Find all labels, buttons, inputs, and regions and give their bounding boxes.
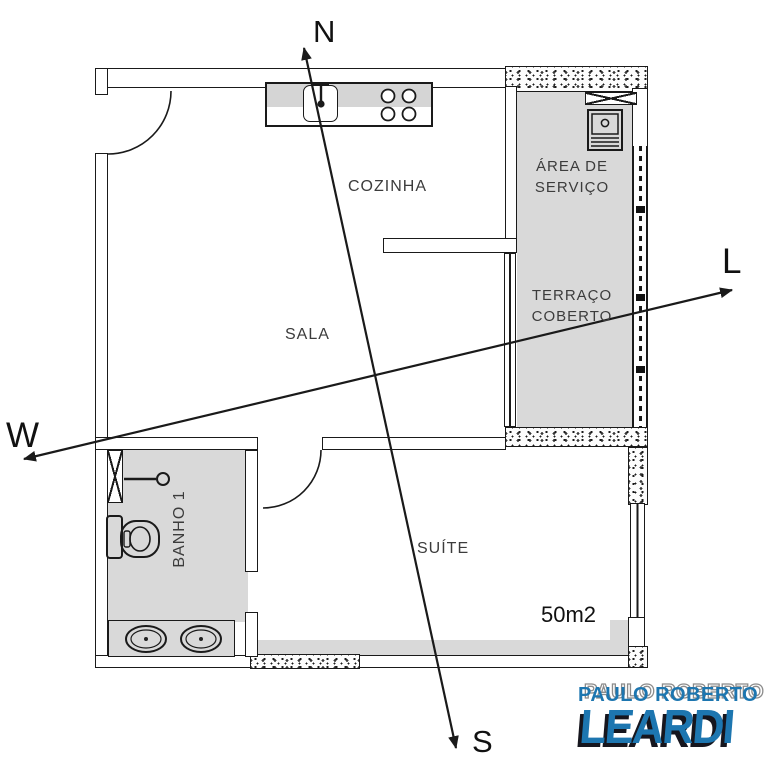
room-label-sala: SALA — [285, 326, 330, 344]
bottom-right-corner-stippled — [628, 646, 648, 668]
logo-wordmark: LEARDI — [578, 706, 751, 749]
terrace-sliding-door — [504, 253, 516, 427]
room-label-terraco: TERRAÇO COBERTO — [522, 285, 622, 327]
service-shaft-icon — [585, 92, 637, 105]
leardi-logo: PAULO ROBERTO PAULO ROBERTO LEARDI — [578, 684, 762, 749]
suite-window-jamb — [628, 617, 645, 648]
bathroom-right-wall-upper — [245, 450, 258, 572]
suite-door-arc — [263, 450, 321, 508]
room-label-terraco-line2: COBERTO — [522, 306, 622, 327]
suite-window — [630, 503, 645, 619]
bottom-wall-stippled-segment — [250, 654, 360, 669]
railing-tick — [636, 366, 645, 373]
suite-right-wall-stippled — [628, 447, 648, 505]
kitchen-half-wall — [383, 238, 517, 253]
room-label-area-servico: ÁREA DE SERVIÇO — [522, 156, 622, 198]
railing-tick — [636, 206, 645, 213]
compass-south-label: S — [472, 724, 493, 760]
floor-plan: COZINHA SALA ÁREA DE SERVIÇO TERRAÇO COB… — [0, 0, 768, 768]
kitchen-sink-icon — [303, 85, 338, 122]
compass-north-label: N — [313, 14, 335, 50]
kitchen-service-wall — [505, 86, 517, 253]
terrace-railing — [632, 146, 648, 427]
room-label-terraco-line1: TERRAÇO — [522, 285, 622, 306]
left-wall-upper — [95, 68, 108, 95]
compass-east-label: L — [722, 242, 741, 282]
suite-top-wall — [322, 437, 506, 450]
suite-floor-step — [610, 620, 630, 657]
room-label-area-servico-line1: ÁREA DE — [522, 156, 622, 177]
area-value: 50m2 — [541, 602, 596, 628]
kitchen-counter-backsplash — [267, 84, 431, 107]
vanity-counter — [108, 620, 235, 657]
top-wall-right-stippled — [505, 66, 648, 92]
service-area-floor — [517, 88, 632, 427]
compass-west-label: W — [6, 416, 39, 456]
terrace-bottom-wall-stippled — [505, 427, 648, 447]
room-label-cozinha: COZINHA — [348, 178, 427, 196]
railing-tick — [636, 294, 645, 301]
left-wall — [95, 153, 108, 667]
bathroom-right-wall-lower — [245, 612, 258, 657]
entry-door-arc — [108, 91, 171, 154]
room-label-area-servico-line2: SERVIÇO — [522, 177, 622, 198]
room-label-banho: BANHO 1 — [171, 484, 189, 574]
bathroom-shaft-icon — [107, 450, 123, 503]
room-label-suite: SUÍTE — [417, 540, 469, 558]
bathroom-top-wall — [95, 437, 258, 450]
